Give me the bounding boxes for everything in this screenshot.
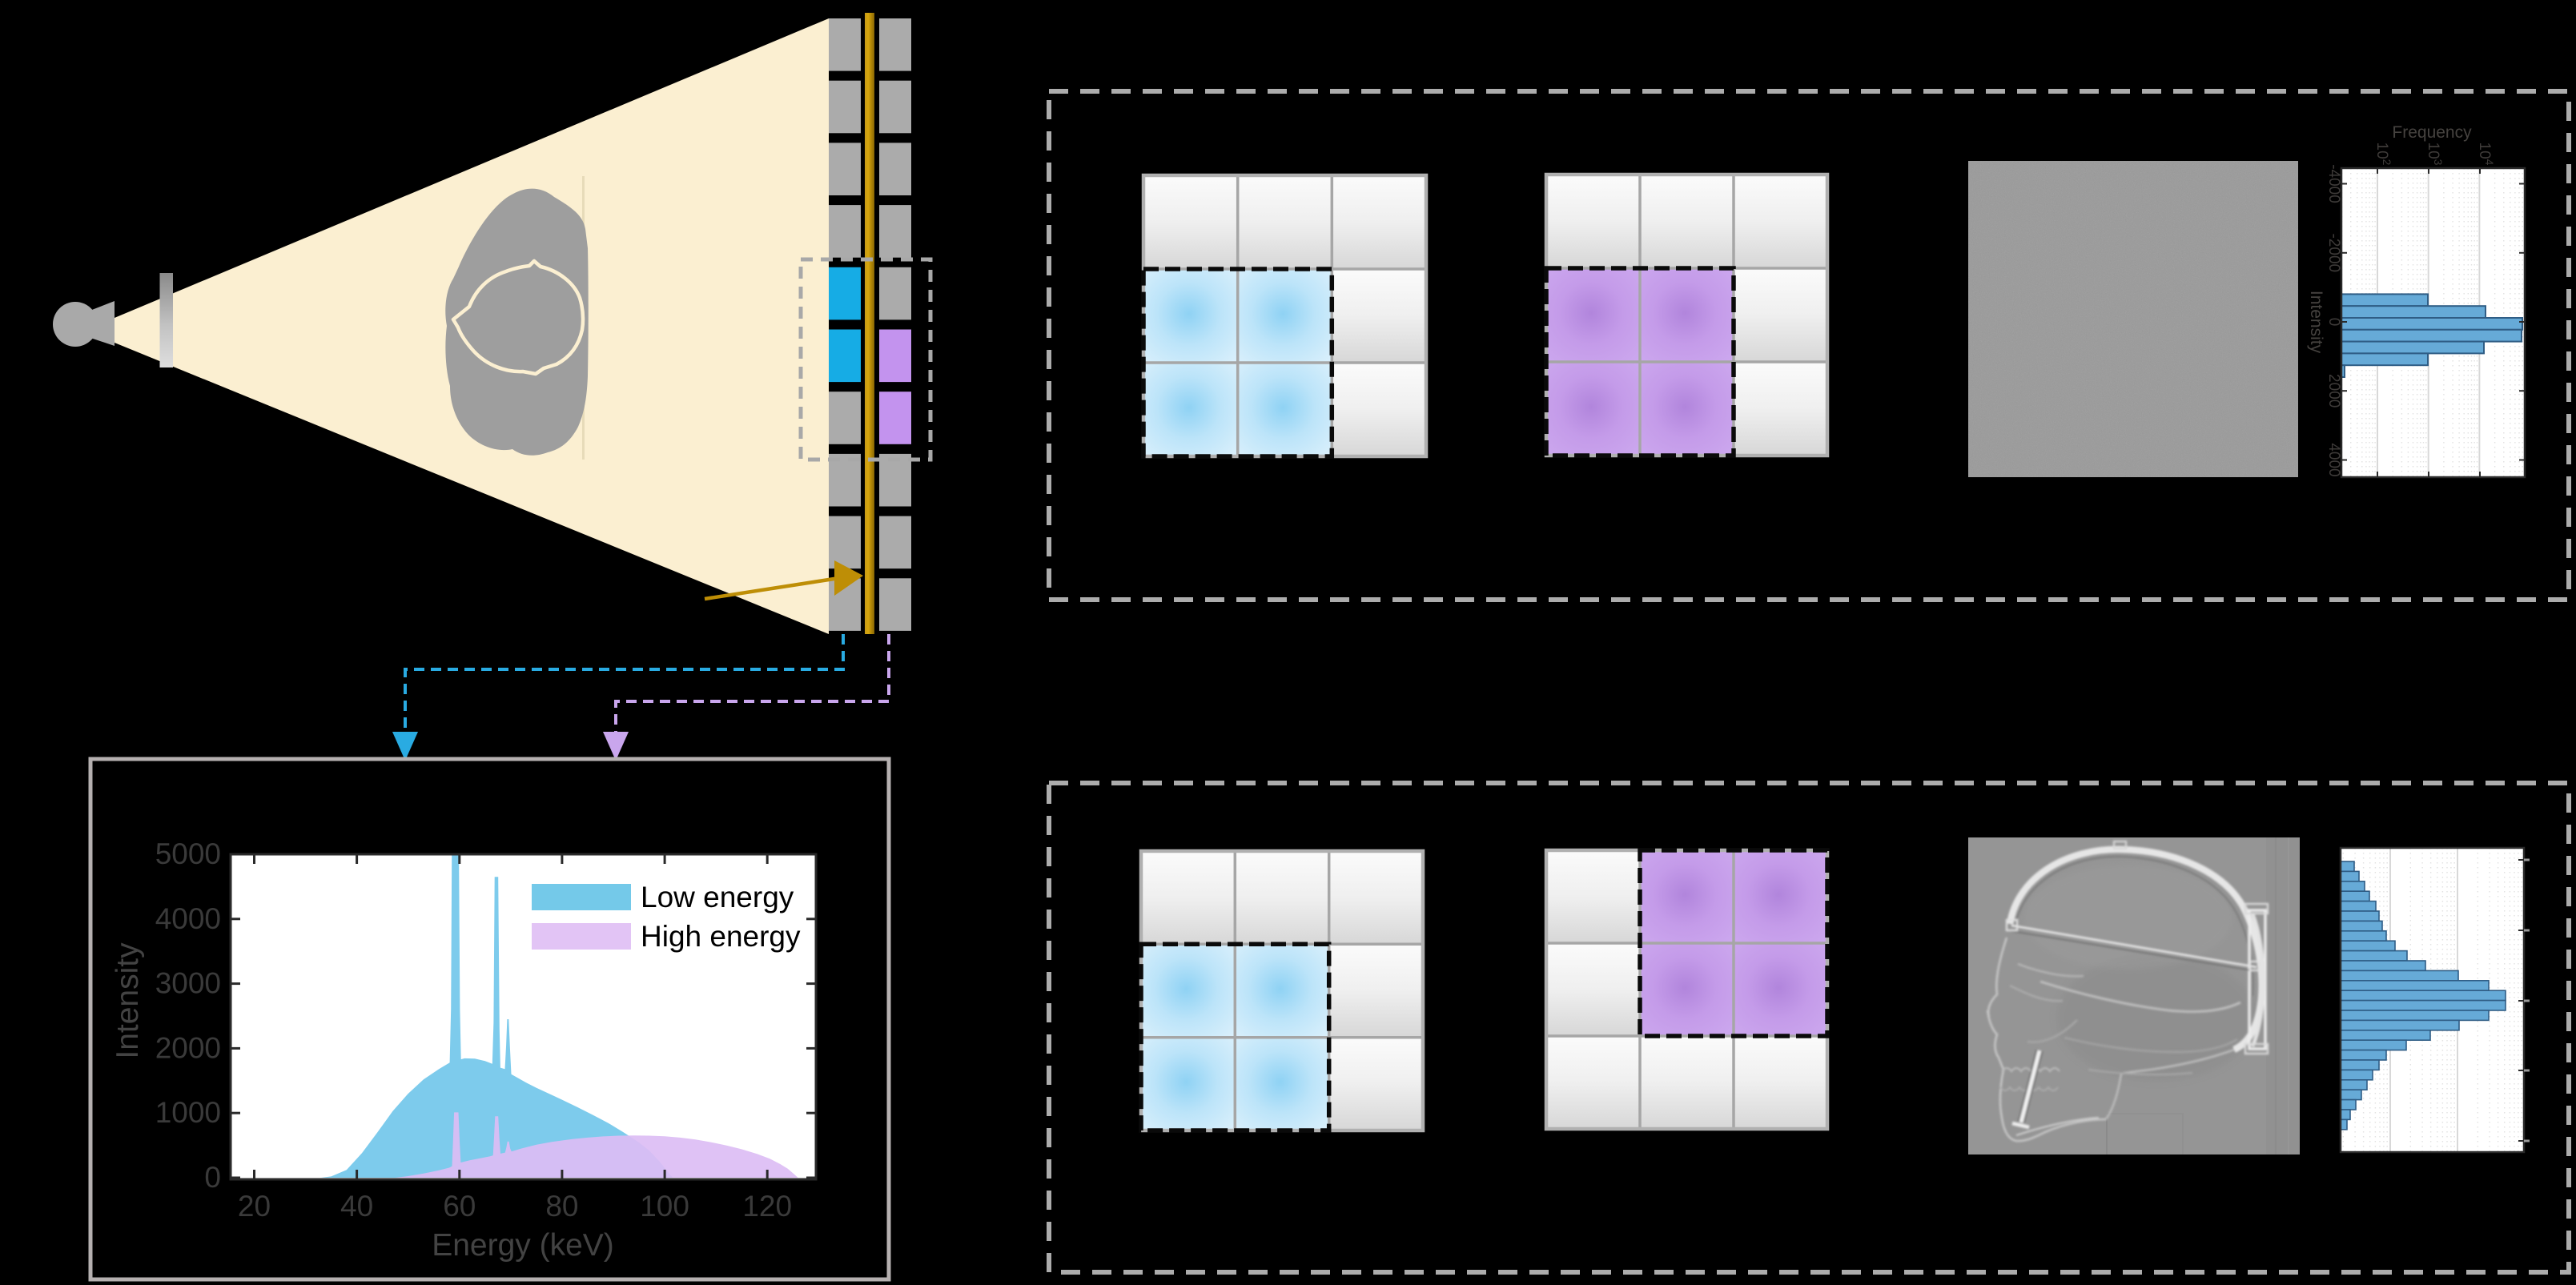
- svg-text:-2000: -2000: [2325, 233, 2342, 272]
- svg-text:High energy: High energy: [641, 920, 801, 953]
- svg-text:Intensity: Intensity: [111, 942, 145, 1059]
- svg-text:3000: 3000: [155, 967, 221, 1000]
- svg-text:2000: 2000: [155, 1031, 221, 1064]
- svg-text:Low energy: Low energy: [641, 881, 794, 914]
- svg-text:Intensity: Intensity: [2307, 291, 2325, 354]
- svg-text:80: 80: [545, 1190, 578, 1223]
- svg-text:120: 120: [742, 1190, 792, 1223]
- svg-text:104: 104: [2476, 143, 2496, 166]
- svg-text:Energy (keV): Energy (keV): [432, 1228, 614, 1263]
- svg-text:103: 103: [2425, 143, 2445, 166]
- svg-text:0: 0: [2325, 318, 2342, 327]
- svg-text:-4000: -4000: [2325, 164, 2342, 203]
- svg-text:102: 102: [2373, 143, 2393, 166]
- svg-text:100: 100: [640, 1190, 689, 1223]
- svg-text:Frequency: Frequency: [2392, 123, 2472, 142]
- svg-text:20: 20: [238, 1190, 271, 1223]
- svg-text:60: 60: [443, 1190, 476, 1223]
- svg-text:2000: 2000: [2325, 374, 2342, 408]
- svg-text:5000: 5000: [155, 837, 221, 870]
- svg-text:4000: 4000: [155, 902, 221, 935]
- svg-text:4000: 4000: [2325, 443, 2342, 476]
- svg-text:40: 40: [340, 1190, 373, 1223]
- svg-text:1000: 1000: [155, 1096, 221, 1129]
- svg-text:0: 0: [204, 1161, 221, 1194]
